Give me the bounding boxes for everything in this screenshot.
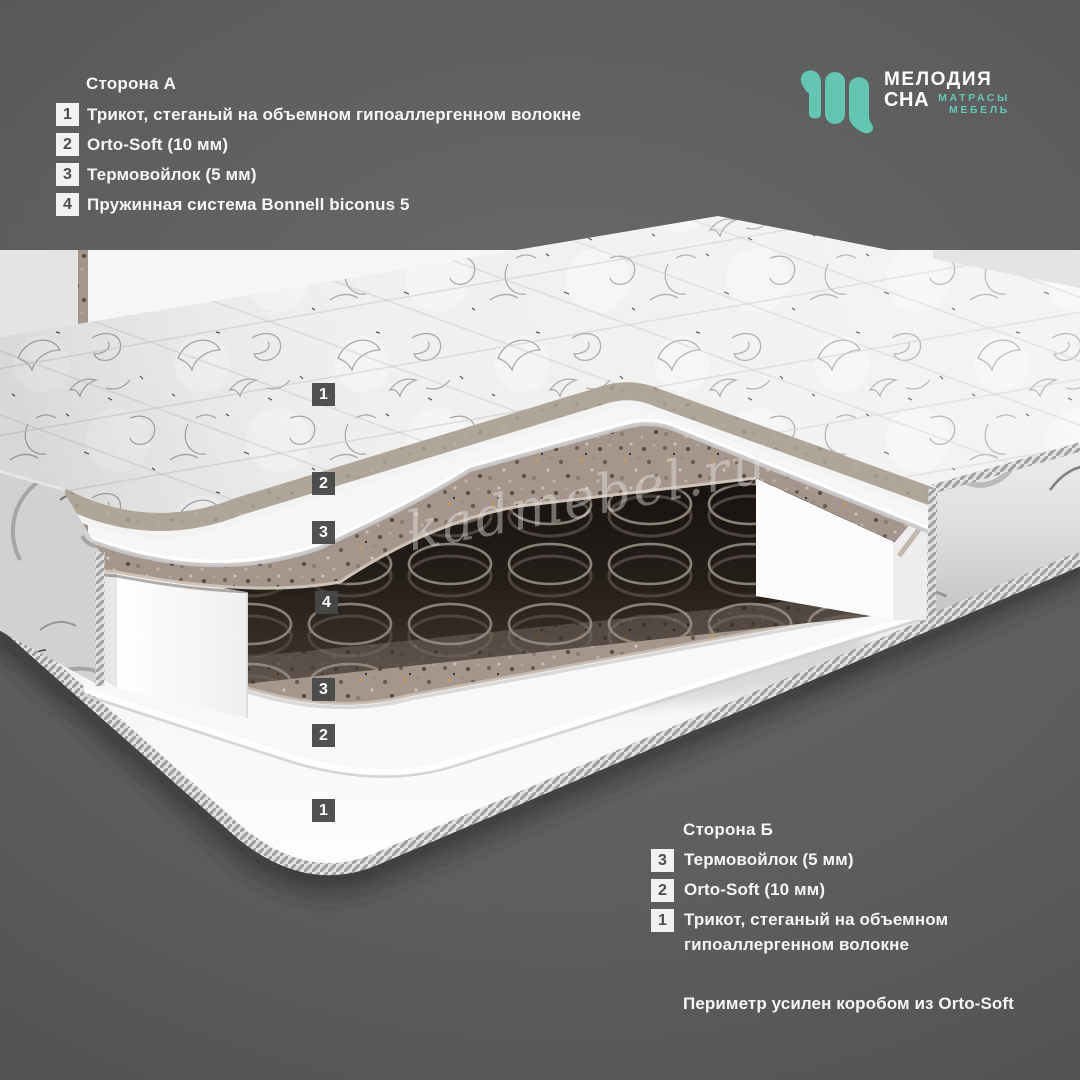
legend-number-badge: 2 (651, 879, 674, 902)
legend-number-badge: 3 (56, 163, 79, 186)
legend-label: Термовойлок (5 мм) (684, 847, 854, 872)
legend-row: 1 Трикот, стеганый на объемном гипоаллер… (651, 909, 956, 957)
diagram-tag-layer4-springs: 4 (315, 591, 338, 614)
legend-row: 2 Orto-Soft (10 мм) (651, 879, 956, 902)
legend-row: 4 Пружинная система Bonnell biconus 5 (56, 193, 581, 216)
legend-row: 3 Термовойлок (5 мм) (56, 163, 581, 186)
brand-tagline-line2: МЕБЕЛЬ (949, 105, 1010, 117)
brand-monogram-icon (796, 66, 874, 136)
side-a-legend: Сторона А 1 Трикот, стеганый на объемном… (56, 74, 581, 223)
side-b-legend: Сторона Б 3 Термовойлок (5 мм) 2 Orto-So… (651, 820, 956, 964)
product-card: kadmebel.ru МЕЛОДИЯ СНА МАТРАСЫ МЕБЕЛЬ С… (0, 0, 1080, 1080)
diagram-tag-layer3-bottom: 3 (312, 678, 335, 701)
legend-number-badge: 1 (651, 909, 674, 932)
diagram-tag-layer3-top: 3 (312, 521, 335, 544)
diagram-tag-layer2-top: 2 (312, 472, 335, 495)
diagram-tag-layer2-bottom: 2 (312, 724, 335, 747)
legend-label: Термовойлок (5 мм) (87, 165, 257, 185)
legend-label: Трикот, стеганый на объемном гипоаллерге… (87, 105, 581, 125)
legend-label: Orto-Soft (10 мм) (87, 135, 228, 155)
brand-name-line1: МЕЛОДИЯ (884, 69, 1010, 90)
diagram-tag-layer1-bottom: 1 (312, 799, 335, 822)
legend-number-badge: 3 (651, 849, 674, 872)
legend-row: 2 Orto-Soft (10 мм) (56, 133, 581, 156)
perimeter-note: Периметр усилен коробом из Orto-Soft (683, 994, 1014, 1014)
side-a-title: Сторона А (86, 74, 581, 94)
legend-row: 3 Термовойлок (5 мм) (651, 849, 956, 872)
legend-number-badge: 2 (56, 133, 79, 156)
brand-tagline-line1: МАТРАСЫ (938, 93, 1010, 105)
legend-label: Трикот, стеганый на объемном гипоаллерге… (684, 907, 956, 957)
legend-label: Пружинная система Bonnell biconus 5 (87, 195, 410, 215)
legend-row: 1 Трикот, стеганый на объемном гипоаллер… (56, 103, 581, 126)
side-b-title: Сторона Б (683, 820, 956, 840)
brand-logo: МЕЛОДИЯ СНА МАТРАСЫ МЕБЕЛЬ (796, 66, 1010, 136)
legend-number-badge: 4 (56, 193, 79, 216)
diagram-tag-layer1-top: 1 (312, 383, 335, 406)
brand-name-line2: СНА (884, 90, 929, 111)
legend-label: Orto-Soft (10 мм) (684, 877, 825, 902)
legend-number-badge: 1 (56, 103, 79, 126)
